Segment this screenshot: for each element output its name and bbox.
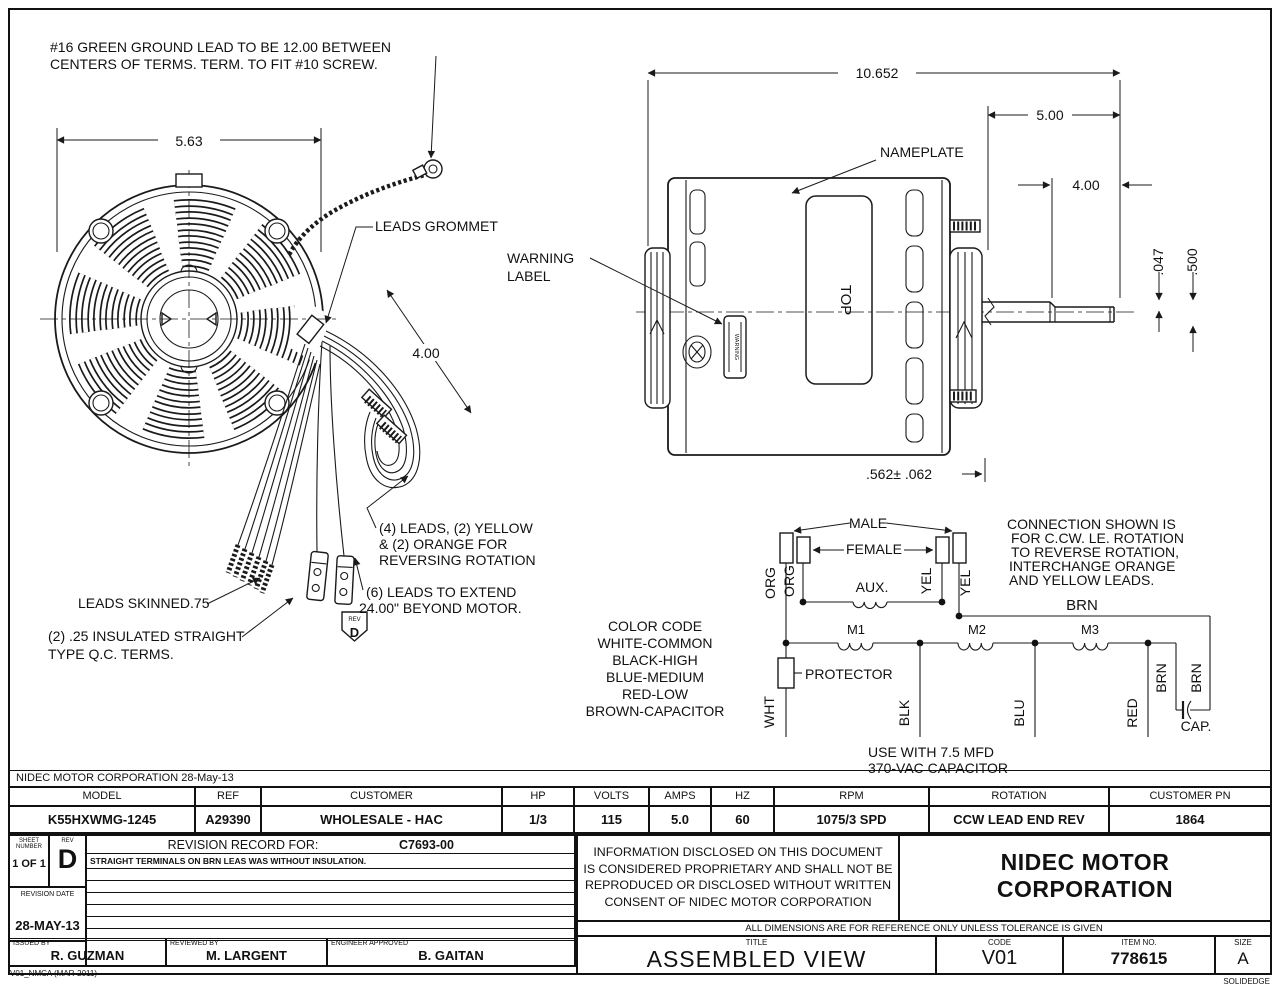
revision-empty-row <box>87 917 574 929</box>
dim-flat-length: 4.00 <box>1072 177 1099 193</box>
sheet-label-2: NUMBER <box>10 844 48 850</box>
org-inner-label: ORG <box>781 565 797 597</box>
company-name-line1: NIDEC MOTOR <box>900 849 1270 876</box>
value-model: K55HXWMG-1245 <box>10 807 196 832</box>
dim-hub-width: .562± .062 <box>866 466 932 482</box>
engineering-drawing-page: 5.63 <box>0 0 1280 986</box>
dim-shaft-dia: .500 <box>1184 248 1200 275</box>
dim-flat-depth: .047 <box>1150 248 1166 275</box>
cap-note-line2: 370-VAC CAPACITOR <box>868 760 1008 776</box>
revision-record-label: REVISION RECORD FOR: <box>87 838 399 852</box>
value-hz: 60 <box>712 807 775 832</box>
wht-label: WHT <box>761 696 777 728</box>
form-number: V01_NMCA (MAR-2011) <box>10 969 97 978</box>
value-ref: A29390 <box>196 807 262 832</box>
female-label: FEMALE <box>846 541 902 557</box>
rev-value: D <box>50 844 85 874</box>
warning-sticker-text: WARNING <box>733 334 739 360</box>
title-box: TITLE ASSEMBLED VIEW <box>578 937 937 973</box>
red-label: RED <box>1124 698 1140 728</box>
ground-note-line2: CENTERS OF TERMS. TERM. TO FIT #10 SCREW… <box>50 56 378 72</box>
brn-left-label: BRN <box>1153 663 1169 693</box>
col-header-hp: HP <box>503 788 575 807</box>
dim-overall: 10.652 <box>856 65 899 81</box>
issued-by-label: ISSUED BY <box>13 940 50 947</box>
qc-terms-note-line2: TYPE Q.C. TERMS. <box>48 646 174 662</box>
rev-label: REV <box>50 836 85 844</box>
warning-label-line2: LABEL <box>507 268 551 284</box>
cap-note-line1: USE WITH 7.5 MFD <box>868 744 994 760</box>
blk-label: BLK <box>896 699 912 726</box>
proprietary-line: IS CONSIDERED PROPRIETARY AND SHALL NOT … <box>578 861 898 878</box>
company-name-line2: CORPORATION <box>900 876 1270 903</box>
value-customer-pn: 1864 <box>1110 807 1270 832</box>
revision-empty-row <box>87 905 574 917</box>
dim-lead-4-00: 4.00 <box>412 345 439 361</box>
col-header-customer-pn: CUSTOMER PN <box>1110 788 1270 807</box>
leads4-note-line3: REVERSING ROTATION <box>379 552 536 568</box>
drawing-canvas: 5.63 <box>0 0 1280 786</box>
col-header-rotation: ROTATION <box>930 788 1110 807</box>
title-row: TITLE ASSEMBLED VIEW CODE V01 ITEM NO. 7… <box>578 937 1270 973</box>
revision-date-label: REVISION DATE <box>10 888 85 898</box>
tolerance-note: ALL DIMENSIONS ARE FOR REFERENCE ONLY UN… <box>578 922 1270 937</box>
warning-sticker: WARNING <box>724 316 746 378</box>
reviewed-by-label: REVIEWED BY <box>170 940 219 947</box>
proprietary-line: REPRODUCED OR DISCLOSED WITHOUT WRITTEN <box>578 877 898 894</box>
value-rotation: CCW LEAD END REV <box>930 807 1110 832</box>
title-company-block: INFORMATION DISCLOSED ON THIS DOCUMENT I… <box>576 834 1272 975</box>
cad-system-tag: SOLIDEDGE <box>1223 977 1270 986</box>
dim-5-63: 5.63 <box>175 133 202 149</box>
rev-box: REV D <box>50 836 87 888</box>
color-code-brown: BROWN-CAPACITOR <box>586 703 725 719</box>
color-code-white: WHITE-COMMON <box>597 635 712 651</box>
col-header-model: MODEL <box>10 788 196 807</box>
revision-empty-row <box>87 893 574 905</box>
m1-label: M1 <box>847 622 865 637</box>
wiring-schematic: MALE FEMALE AUX. BRN <box>586 515 1212 776</box>
revision-record-area: REVISION RECORD FOR: C7693-00 STRAIGHT T… <box>87 836 574 938</box>
rev-flag-label: REV <box>348 617 360 623</box>
male-label: MALE <box>849 515 887 531</box>
revision-record-code: C7693-00 <box>399 838 574 852</box>
leads6-note-line2: 24.00" BEYOND MOTOR. <box>359 600 522 616</box>
m2-label: M2 <box>968 622 986 637</box>
qc-terminal-2 <box>335 556 354 605</box>
item-no-label: ITEM NO. <box>1064 937 1214 947</box>
org-outer-label: ORG <box>762 567 778 599</box>
sheet-number-box: SHEET NUMBER 1 OF 1 <box>10 836 50 888</box>
revision-empty-row <box>87 881 574 893</box>
col-header-rpm: RPM <box>775 788 930 807</box>
code-label: CODE <box>937 937 1062 947</box>
value-rpm: 1075/3 SPD <box>775 807 930 832</box>
sheet-value: 1 OF 1 <box>10 858 48 870</box>
engineer-approved-label: ENGINEER APPROVED <box>331 940 408 947</box>
cap-label: CAP. <box>1181 718 1212 734</box>
proprietary-line: CONSENT OF NIDEC MOTOR CORPORATION <box>578 894 898 911</box>
left-mounting-hub <box>645 248 670 408</box>
color-code-black: BLACK-HIGH <box>612 652 698 668</box>
brn-top-label: BRN <box>1066 597 1098 614</box>
title-value: ASSEMBLED VIEW <box>578 947 935 971</box>
revision-block: SHEET NUMBER 1 OF 1 REV D REVISION DATE … <box>8 834 576 967</box>
proprietary-notice: INFORMATION DISCLOSED ON THIS DOCUMENT I… <box>578 836 900 922</box>
value-volts: 115 <box>575 807 650 832</box>
revision-record-note: STRAIGHT TERMINALS ON BRN LEAS WAS WITHO… <box>87 854 574 869</box>
code-value: V01 <box>937 947 1062 969</box>
rev-flag: REV D <box>342 612 367 641</box>
ground-note-line1: #16 GREEN GROUND LEAD TO BE 12.00 BETWEE… <box>50 39 391 55</box>
side-view-dims: 10.652 5.00 4.00 .047 .500 .562± .062 NA… <box>507 64 1200 482</box>
company-name: NIDEC MOTOR CORPORATION <box>900 836 1270 922</box>
corporation-date-note: NIDEC MOTOR CORPORATION 28-May-13 <box>16 772 234 784</box>
motor-front-view <box>40 170 350 468</box>
code-box: CODE V01 <box>937 937 1064 973</box>
engineer-approved-box: ENGINEER APPROVED B. GAITAN <box>328 939 574 965</box>
value-amps: 5.0 <box>650 807 712 832</box>
nameplate-label: NAMEPLATE <box>880 144 964 160</box>
size-box: SIZE A <box>1216 937 1270 973</box>
protector-label: PROTECTOR <box>805 666 893 682</box>
spec-table: MODEL REF CUSTOMER HP VOLTS AMPS HZ RPM … <box>8 786 1272 834</box>
size-value: A <box>1216 947 1270 970</box>
value-hp: 1/3 <box>503 807 575 832</box>
rev-flag-letter: D <box>350 625 359 640</box>
col-header-hz: HZ <box>712 788 775 807</box>
size-label: SIZE <box>1216 937 1270 947</box>
revision-date-box: REVISION DATE 28-MAY-13 <box>10 888 87 942</box>
reviewed-by-box: REVIEWED BY M. LARGENT <box>167 939 328 965</box>
signature-row: ISSUED BY R. GUZMAN REVIEWED BY M. LARGE… <box>10 938 574 965</box>
issued-by-box: ISSUED BY R. GUZMAN <box>10 939 167 965</box>
warning-label-line1: WARNING <box>507 250 574 266</box>
sheet-label-1: SHEET <box>10 836 48 844</box>
leads4-note-line1: (4) LEADS, (2) YELLOW <box>379 520 534 536</box>
aux-label: AUX. <box>856 579 889 595</box>
conn-note-line5: AND YELLOW LEADS. <box>1009 572 1154 588</box>
yel-inner-label: YEL <box>918 568 934 595</box>
yel-outer-label: YEL <box>957 570 973 597</box>
reviewed-by-value: M. LARGENT <box>167 948 326 963</box>
dim-shaft-ext: 5.00 <box>1036 107 1063 123</box>
item-no-value: 778615 <box>1064 947 1214 970</box>
color-code-red: RED-LOW <box>622 686 689 702</box>
proprietary-line: INFORMATION DISCLOSED ON THIS DOCUMENT <box>578 844 898 861</box>
top-marking: TOP <box>837 285 854 316</box>
revision-empty-row <box>87 869 574 881</box>
issued-by-value: R. GUZMAN <box>10 948 165 963</box>
col-header-customer: CUSTOMER <box>262 788 503 807</box>
color-code-title: COLOR CODE <box>608 618 702 634</box>
right-mounting-hub <box>950 248 982 408</box>
col-header-amps: AMPS <box>650 788 712 807</box>
leads-grommet-label: LEADS GROMMET <box>375 218 498 234</box>
m3-label: M3 <box>1081 622 1099 637</box>
motor-side-view: TOP WARNING <box>636 178 1136 455</box>
col-header-volts: VOLTS <box>575 788 650 807</box>
titleblock-divider <box>8 770 1272 771</box>
leads4-note-line2: & (2) ORANGE FOR <box>379 536 507 552</box>
revision-date-value: 28-MAY-13 <box>10 918 85 933</box>
leads-skinned-label: LEADS SKINNED.75 <box>78 595 210 611</box>
blu-label: BLU <box>1011 699 1027 726</box>
brn-right-label: BRN <box>1188 663 1204 693</box>
engineer-approved-value: B. GAITAN <box>328 948 574 963</box>
leads6-note-line1: (6) LEADS TO EXTEND <box>366 584 516 600</box>
value-customer: WHOLESALE - HAC <box>262 807 503 832</box>
item-no-box: ITEM NO. 778615 <box>1064 937 1216 973</box>
col-header-ref: REF <box>196 788 262 807</box>
qc-terminal-1 <box>307 551 329 601</box>
color-code-blue: BLUE-MEDIUM <box>606 669 704 685</box>
qc-terms-note-line1: (2) .25 INSULATED STRAIGHT <box>48 628 245 644</box>
